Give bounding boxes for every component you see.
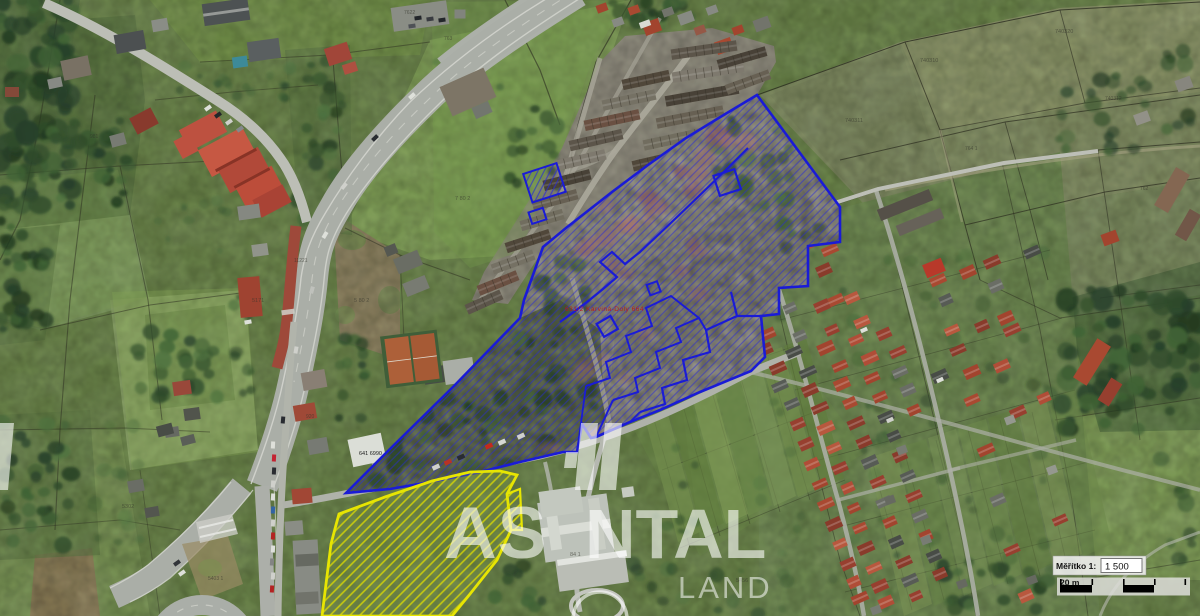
svg-text:NTAL: NTAL	[585, 495, 766, 573]
svg-text:7622: 7622	[404, 10, 415, 16]
svg-text:11221: 11221	[294, 258, 308, 264]
svg-text:84 1: 84 1	[570, 552, 581, 558]
svg-text:740311: 740311	[845, 118, 863, 124]
svg-text:5 80 2: 5 80 2	[354, 298, 369, 304]
svg-text:1 500: 1 500	[1105, 562, 1129, 573]
svg-text:920: 920	[306, 414, 315, 420]
svg-text:740310: 740310	[920, 58, 938, 64]
svg-text:7 80 2: 7 80 2	[455, 196, 470, 202]
svg-text:763: 763	[444, 36, 453, 42]
svg-text:LAND: LAND	[678, 570, 773, 605]
svg-text:762: 762	[1140, 186, 1149, 192]
svg-text:981: 981	[90, 134, 99, 140]
svg-text:641 6990: 641 6990	[359, 451, 382, 457]
svg-text:740312: 740312	[1105, 96, 1122, 102]
svg-text:5171: 5171	[252, 298, 264, 304]
svg-text:764 1: 764 1	[965, 146, 978, 152]
svg-text:5302: 5302	[122, 504, 134, 510]
svg-text:Měřítko 1:: Měřítko 1:	[1056, 561, 1096, 571]
svg-text:740320: 740320	[1055, 29, 1073, 35]
svg-text:5403 1: 5403 1	[208, 576, 224, 582]
svg-text:AS: AS	[444, 493, 547, 574]
